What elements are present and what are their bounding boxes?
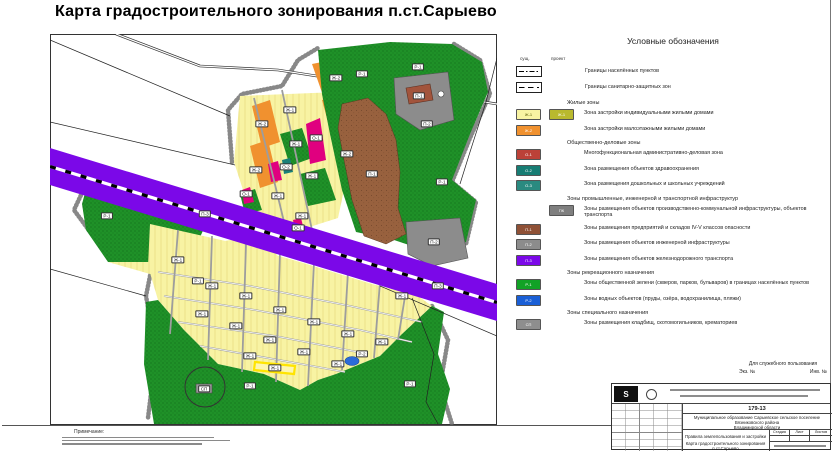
legend-row: О-1 Многофункциональная административно-… — [516, 149, 832, 160]
legend-row-label: Зоны размещения объектов железнодорожног… — [584, 255, 733, 263]
page-title: Карта градостроительного зонирования п.с… — [55, 3, 497, 21]
legend-row: О-3 Зона размещения дошкольных и школьны… — [516, 180, 832, 191]
municipality-block: Муниципальное образование Сарыевское сел… — [682, 414, 832, 430]
boundary-symbol-settlement — [516, 66, 542, 77]
legend-row: Р-2 Зоны водных объектов (пруды, озёра, … — [516, 295, 832, 306]
zone-swatch: П-2 — [516, 239, 541, 250]
notes-heading: Примечание: — [74, 429, 230, 435]
legend-row: Ж-1 Ж-1 Зона застройки индивидуальными ж… — [516, 109, 832, 120]
zone-swatch: Ж-1 — [516, 109, 541, 120]
legend-row-label: Зона размещения объектов здравоохранения — [584, 165, 699, 173]
legend-row: О-2 Зона размещения объектов здравоохран… — [516, 165, 832, 176]
legend-row-label: Зоны водных объектов (пруды, озёра, водо… — [584, 295, 741, 303]
legend-section-special: Зоны специального назначения СП Зоны раз… — [510, 310, 832, 330]
legend-title: Условные обозначения — [598, 36, 748, 46]
legend-row-label: Зоны общественной зелени (скверов, парко… — [584, 279, 809, 287]
zone-swatch: О-2 — [516, 165, 541, 176]
legend-section-recreation: Зоны рекреационного назначения Р-1 Зоны … — [510, 270, 832, 306]
zoning-map: .z-r1{fill:var(--r1);} .z-zh1{fill:var(-… — [50, 34, 497, 425]
zone-swatch: СП — [516, 319, 541, 330]
dash-line-icon — [519, 87, 539, 88]
company-text-line — [774, 445, 826, 447]
copy-number-label: Экз. № — [739, 369, 755, 375]
legend-row: П-2 Зоны размещения объектов инженерной … — [516, 239, 832, 250]
round-seal-icon — [646, 389, 657, 400]
zone-swatch: Р-1 — [516, 279, 541, 290]
legend-section-business: Общественно-деловые зоны О-1 Многофункци… — [510, 140, 832, 191]
legend-section-heading: Зоны рекреационного назначения — [567, 270, 832, 276]
boundary-symbol-sanitary — [516, 82, 542, 93]
legend-section-heading: Общественно-деловые зоны — [567, 140, 832, 146]
legend-section-heading: Зоны промышленные, инженерной и транспор… — [567, 196, 832, 202]
legend-row: П-1 Зоны размещения предприятий и складо… — [516, 224, 832, 235]
note-text-line — [62, 443, 202, 444]
dash-dot-line-icon — [519, 71, 539, 72]
sheet-divider-line — [2, 425, 611, 426]
zone-swatch-project: ПК — [549, 205, 574, 216]
inventory-number-label: Инв. № — [810, 369, 827, 375]
organization-logo: S — [614, 386, 638, 402]
stamp-banner-text-line — [680, 395, 808, 397]
signature-table — [612, 404, 682, 451]
zone-swatch: О-3 — [516, 180, 541, 191]
seal-symbol — [438, 91, 444, 97]
legend-section-industrial: Зоны промышленные, инженерной и транспор… — [510, 196, 832, 266]
pond — [345, 357, 359, 366]
document-number: 179-13 — [682, 404, 832, 414]
boundary-label: Границы населённых пунктов — [585, 68, 659, 74]
legend-row: ПК Зоны размещения объектов производстве… — [516, 205, 832, 220]
legend-section-heading: Жилые зоны — [567, 100, 832, 106]
legend-row-label: Зоны размещения объектов производственно… — [584, 205, 832, 220]
note-text-line — [62, 437, 214, 438]
legend-row: Ж-2 Зона застройки малоэтажными жилыми д… — [516, 125, 832, 136]
legend-row-label: Зоны размещения объектов инженерной инфр… — [584, 239, 730, 247]
zone-swatch-project: Ж-1 — [549, 109, 574, 120]
zone-swatch: О-1 — [516, 149, 541, 160]
legend-row-label: Зона размещения дошкольных и школьных уч… — [584, 180, 725, 188]
boundary-label: Границы санитарно-защитных зон — [585, 84, 671, 90]
legend-col-existing: сущ. — [520, 56, 530, 61]
legend-row-label: Зоны размещения кладбищ, скотомогильнико… — [584, 319, 737, 327]
legend-section-heading: Зоны специального назначения — [567, 310, 832, 316]
legend-row: П-3 Зоны размещения объектов железнодоро… — [516, 255, 832, 266]
legend-row-label: Зона застройки малоэтажными жилыми домам… — [584, 125, 705, 133]
zone-swatch: П-3 — [516, 255, 541, 266]
legend-col-project: проект — [551, 56, 565, 61]
restricted-use-block: Для служебного пользования Экз. № Инв. № — [735, 361, 831, 375]
zone-swatch: Р-2 — [516, 295, 541, 306]
legend-swatches: Ж-1 Ж-1 — [516, 109, 584, 120]
note-text-line — [62, 440, 230, 441]
legend-row-label: Зоны размещения предприятий и складов IV… — [584, 224, 750, 232]
zone-swatch: П-1 — [516, 224, 541, 235]
sheet: { "sheet": { "title": "Карта градостроит… — [0, 0, 840, 450]
legend-row-label: Многофункциональная административно-дело… — [584, 149, 723, 157]
restricted-use-heading: Для служебного пользования — [735, 361, 831, 367]
stamp-banner-text-line — [670, 389, 820, 391]
notes-block: Примечание: — [62, 429, 230, 445]
legend-row: СП Зоны размещения кладбищ, скотомогильн… — [516, 319, 832, 330]
legend-section-residential: Жилые зоны Ж-1 Ж-1 Зона застройки индиви… — [510, 100, 832, 136]
zone-swatch: Ж-2 — [516, 125, 541, 136]
legend-row: Р-1 Зоны общественной зелени (скверов, п… — [516, 279, 832, 290]
legend-row-label: Зона застройки индивидуальными жилыми до… — [584, 109, 713, 117]
title-block: S 179-13 Муниципальное образование Сарые… — [611, 383, 831, 450]
legend-rows: Жилые зоны Ж-1 Ж-1 Зона застройки индиви… — [510, 96, 832, 335]
